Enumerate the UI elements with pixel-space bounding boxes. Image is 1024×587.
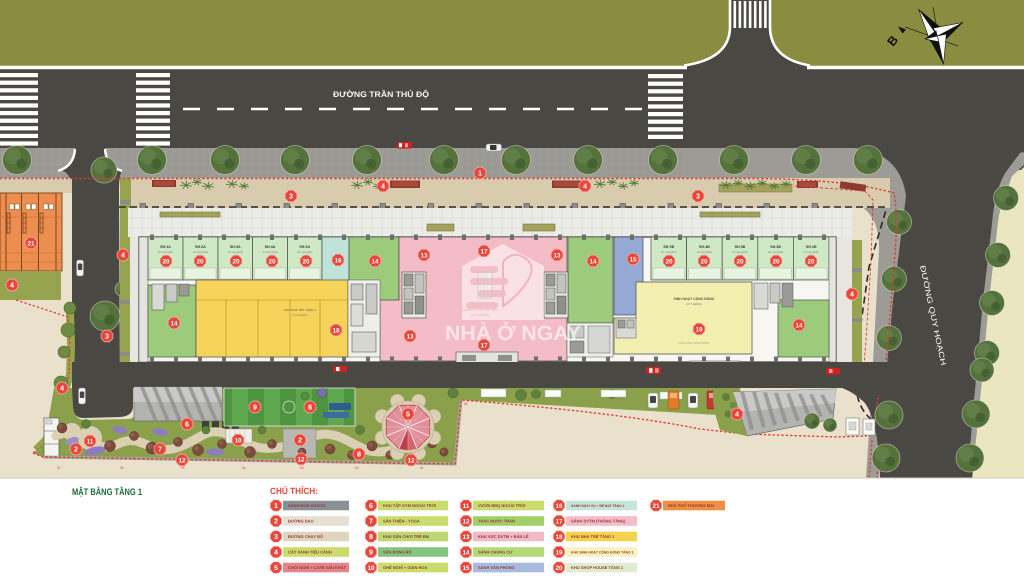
- svg-text:2: 2: [74, 444, 78, 453]
- svg-text:55: 55: [181, 466, 185, 470]
- svg-text:4: 4: [381, 181, 385, 190]
- svg-text:3: 3: [289, 191, 293, 200]
- svg-text:ĐƯỜNG DẠO: ĐƯỜNG DẠO: [288, 519, 314, 524]
- svg-text:12: 12: [297, 456, 305, 463]
- svg-text:20: 20: [232, 258, 240, 265]
- svg-text:10: 10: [234, 437, 242, 444]
- svg-text:SH-1B: SH-1B: [806, 245, 817, 249]
- svg-text:SẢNH CHUNG CƯ: SẢNH CHUNG CƯ: [478, 550, 513, 555]
- svg-text:15: 15: [462, 565, 470, 572]
- svg-text:DT=34,2(M2): DT=34,2(M2): [158, 251, 173, 254]
- svg-text:3: 3: [105, 331, 109, 340]
- svg-text:SH-1A: SH-1A: [160, 245, 171, 249]
- svg-text:VƯỜN BBQ NGOÀI TRỜI: VƯỜN BBQ NGOÀI TRỜI: [478, 503, 525, 508]
- svg-text:SH-2B: SH-2B: [770, 245, 781, 249]
- svg-text:14: 14: [371, 258, 379, 265]
- svg-text:13: 13: [462, 534, 470, 541]
- svg-text:20: 20: [555, 565, 563, 572]
- svg-text:21: 21: [27, 240, 35, 247]
- svg-text:5: 5: [406, 409, 410, 418]
- svg-text:12: 12: [462, 518, 470, 525]
- svg-text:20: 20: [268, 258, 276, 265]
- svg-text:20: 20: [700, 258, 708, 265]
- svg-text:1: 1: [274, 501, 278, 510]
- svg-text:SẢNH DỊCH VỤ + BỂ BƠI TẦNG 1: SẢNH DỊCH VỤ + BỂ BƠI TẦNG 1: [571, 503, 625, 508]
- svg-text:13: 13: [406, 333, 414, 340]
- svg-text:57: 57: [57, 466, 61, 470]
- svg-text:20: 20: [807, 258, 815, 265]
- svg-text:NHÀ Ở NGAY: NHÀ Ở NGAY: [445, 321, 581, 345]
- svg-text:13: 13: [553, 252, 561, 259]
- svg-text:10: 10: [367, 565, 375, 572]
- svg-text:20: 20: [772, 258, 780, 265]
- svg-text:9: 9: [253, 402, 257, 411]
- svg-text:4: 4: [60, 383, 64, 392]
- svg-text:51: 51: [420, 466, 424, 470]
- svg-text:GHẾ NGHỈ + GIÀN HOA: GHẾ NGHỈ + GIÀN HOA: [383, 565, 427, 570]
- svg-text:DT=34,2(M2): DT=34,2(M2): [228, 251, 243, 254]
- svg-text:50: 50: [464, 402, 468, 406]
- svg-text:14: 14: [795, 322, 803, 329]
- svg-text:ĐƯỜNG TRẦN THỦ ĐỘ: ĐƯỜNG TRẦN THỦ ĐỘ: [333, 89, 429, 99]
- svg-text:DT=34,2(M2): DT=34,2(M2): [193, 251, 208, 254]
- svg-text:21: 21: [652, 503, 660, 510]
- svg-text:7: 7: [369, 516, 373, 525]
- svg-text:4: 4: [583, 181, 587, 190]
- svg-text:NHÀ PHỐ THƯƠNG MẠI: NHÀ PHỐ THƯƠNG MẠI: [668, 503, 714, 508]
- svg-text:SẢNH VĂN PHÒNG: SẢNH VĂN PHÒNG: [478, 565, 515, 570]
- svg-text:DT=34,2(M2): DT=34,2(M2): [262, 251, 277, 254]
- svg-text:DT=34,2(M2): DT=34,2(M2): [697, 251, 712, 254]
- svg-text:16: 16: [334, 257, 342, 264]
- svg-text:SẢNH DVTM (THÔNG TẦNG): SẢNH DVTM (THÔNG TẦNG): [571, 519, 626, 524]
- svg-text:14: 14: [589, 258, 597, 265]
- svg-text:15: 15: [629, 256, 637, 263]
- svg-text:8: 8: [308, 402, 312, 411]
- svg-text:ĐƯỜNG CHẠY BỘ: ĐƯỜNG CHẠY BỘ: [288, 534, 323, 539]
- svg-text:54: 54: [242, 466, 246, 470]
- svg-text:SH-4A: SH-4A: [265, 245, 276, 249]
- svg-text:DT=34,2(M2): DT=34,2(M2): [661, 251, 676, 254]
- svg-text:SH-2A: SH-2A: [195, 245, 206, 249]
- svg-text:CHÚ THÍCH:: CHÚ THÍCH:: [270, 486, 318, 496]
- svg-text:KHU SÂN CHƠI TRẺ EM: KHU SÂN CHƠI TRẺ EM: [383, 534, 430, 539]
- svg-text:4: 4: [121, 250, 125, 259]
- svg-text:18: 18: [332, 327, 340, 334]
- svg-text:14: 14: [170, 320, 178, 327]
- svg-text:14: 14: [462, 549, 470, 556]
- svg-text:16: 16: [555, 503, 563, 510]
- svg-text:1: 1: [478, 168, 482, 177]
- svg-text:DT=34,2(M2): DT=34,2(M2): [804, 251, 819, 254]
- svg-text:6: 6: [369, 501, 373, 510]
- svg-text:17: 17: [480, 248, 488, 255]
- svg-text:CHÒI NGHỈ + CAFE GIẢI KHÁT: CHÒI NGHỈ + CAFE GIẢI KHÁT: [288, 565, 347, 570]
- svg-text:19: 19: [555, 549, 563, 556]
- svg-text:SH-4B: SH-4B: [699, 245, 710, 249]
- svg-text:SH-3A: SH-3A: [230, 245, 241, 249]
- svg-text:SINH HOẠT CỘNG ĐỒNG: SINH HOẠT CỘNG ĐỒNG: [678, 341, 709, 345]
- svg-text:20: 20: [302, 258, 310, 265]
- svg-text:4: 4: [850, 289, 854, 298]
- svg-text:3: 3: [274, 532, 278, 541]
- svg-text:17: 17: [555, 518, 563, 525]
- svg-text:SH-5A: SH-5A: [299, 245, 310, 249]
- svg-text:KHU TẬP GYM NGOÀI TRỜI: KHU TẬP GYM NGOÀI TRỜI: [383, 503, 436, 508]
- svg-text:KHU VỰC DVTM + BÁN LẺ: KHU VỰC DVTM + BÁN LẺ: [478, 534, 529, 539]
- svg-text:20: 20: [736, 258, 744, 265]
- svg-text:2: 2: [274, 516, 278, 525]
- svg-text:SÂN BÓNG RỔ: SÂN BÓNG RỔ: [383, 550, 412, 555]
- svg-text:12: 12: [407, 457, 415, 464]
- svg-text:2: 2: [298, 435, 302, 444]
- svg-text:9: 9: [369, 547, 373, 556]
- svg-text:DT=34,2(M2): DT=34,2(M2): [732, 251, 747, 254]
- svg-text:8: 8: [357, 449, 361, 458]
- svg-text:18: 18: [555, 534, 563, 541]
- svg-text:7: 7: [158, 444, 162, 453]
- svg-text:8: 8: [369, 532, 373, 541]
- svg-text:SẢNH ĐÓN KHÁCH: SẢNH ĐÓN KHÁCH: [288, 503, 325, 508]
- svg-text:20: 20: [196, 258, 204, 265]
- svg-text:20: 20: [162, 258, 170, 265]
- svg-text:3: 3: [696, 191, 700, 200]
- svg-text:SH-3B: SH-3B: [735, 245, 746, 249]
- svg-text:4: 4: [274, 547, 278, 556]
- svg-text:SH-5B: SH-5B: [663, 245, 674, 249]
- svg-text:THÁC NƯỚC TRÀN: THÁC NƯỚC TRÀN: [478, 519, 515, 524]
- svg-text:DT=34,2(M2): DT=34,2(M2): [297, 251, 312, 254]
- svg-text:KHU NHÀ TRẺ TẦNG 1: KHU NHÀ TRẺ TẦNG 1: [571, 534, 615, 539]
- svg-text:SINH HOẠT CỘNG ĐỒNG: SINH HOẠT CỘNG ĐỒNG: [674, 296, 715, 301]
- svg-text:6: 6: [185, 419, 189, 428]
- svg-text:11: 11: [87, 438, 94, 445]
- svg-text:SÂN THIỀN - YOGA: SÂN THIỀN - YOGA: [383, 519, 420, 524]
- svg-text:13: 13: [420, 252, 428, 259]
- svg-text:11: 11: [463, 503, 470, 510]
- svg-text:53: 53: [300, 466, 304, 470]
- svg-text:CÂY XANH TIỂU CẢNH: CÂY XANH TIỂU CẢNH: [288, 550, 332, 555]
- svg-text:DT=34,2(M2): DT=34,2(M2): [768, 251, 783, 254]
- svg-text:4: 4: [10, 280, 14, 289]
- svg-text:4: 4: [735, 409, 739, 418]
- svg-text:(DT=448M2): (DT=448M2): [686, 302, 702, 306]
- svg-text:19: 19: [695, 326, 703, 333]
- svg-text:56: 56: [120, 466, 124, 470]
- svg-text:52: 52: [355, 466, 359, 470]
- svg-text:20: 20: [665, 258, 673, 265]
- svg-text:KHU SINH HOẠT CỘNG ĐỒNG TẦNG 1: KHU SINH HOẠT CỘNG ĐỒNG TẦNG 1: [571, 550, 634, 555]
- svg-text:(DT=645M2): (DT=645M2): [293, 314, 308, 317]
- svg-text:17: 17: [480, 342, 488, 349]
- svg-text:MẶT BẰNG TẦNG 1: MẶT BẰNG TẦNG 1: [72, 486, 143, 498]
- svg-text:12: 12: [178, 457, 186, 464]
- svg-text:KHU NHÀ TRẺ TẦNG 1: KHU NHÀ TRẺ TẦNG 1: [284, 308, 316, 312]
- svg-text:KHU SHOP HOUSE TẦNG 1: KHU SHOP HOUSE TẦNG 1: [571, 565, 624, 570]
- svg-text:5: 5: [274, 563, 278, 572]
